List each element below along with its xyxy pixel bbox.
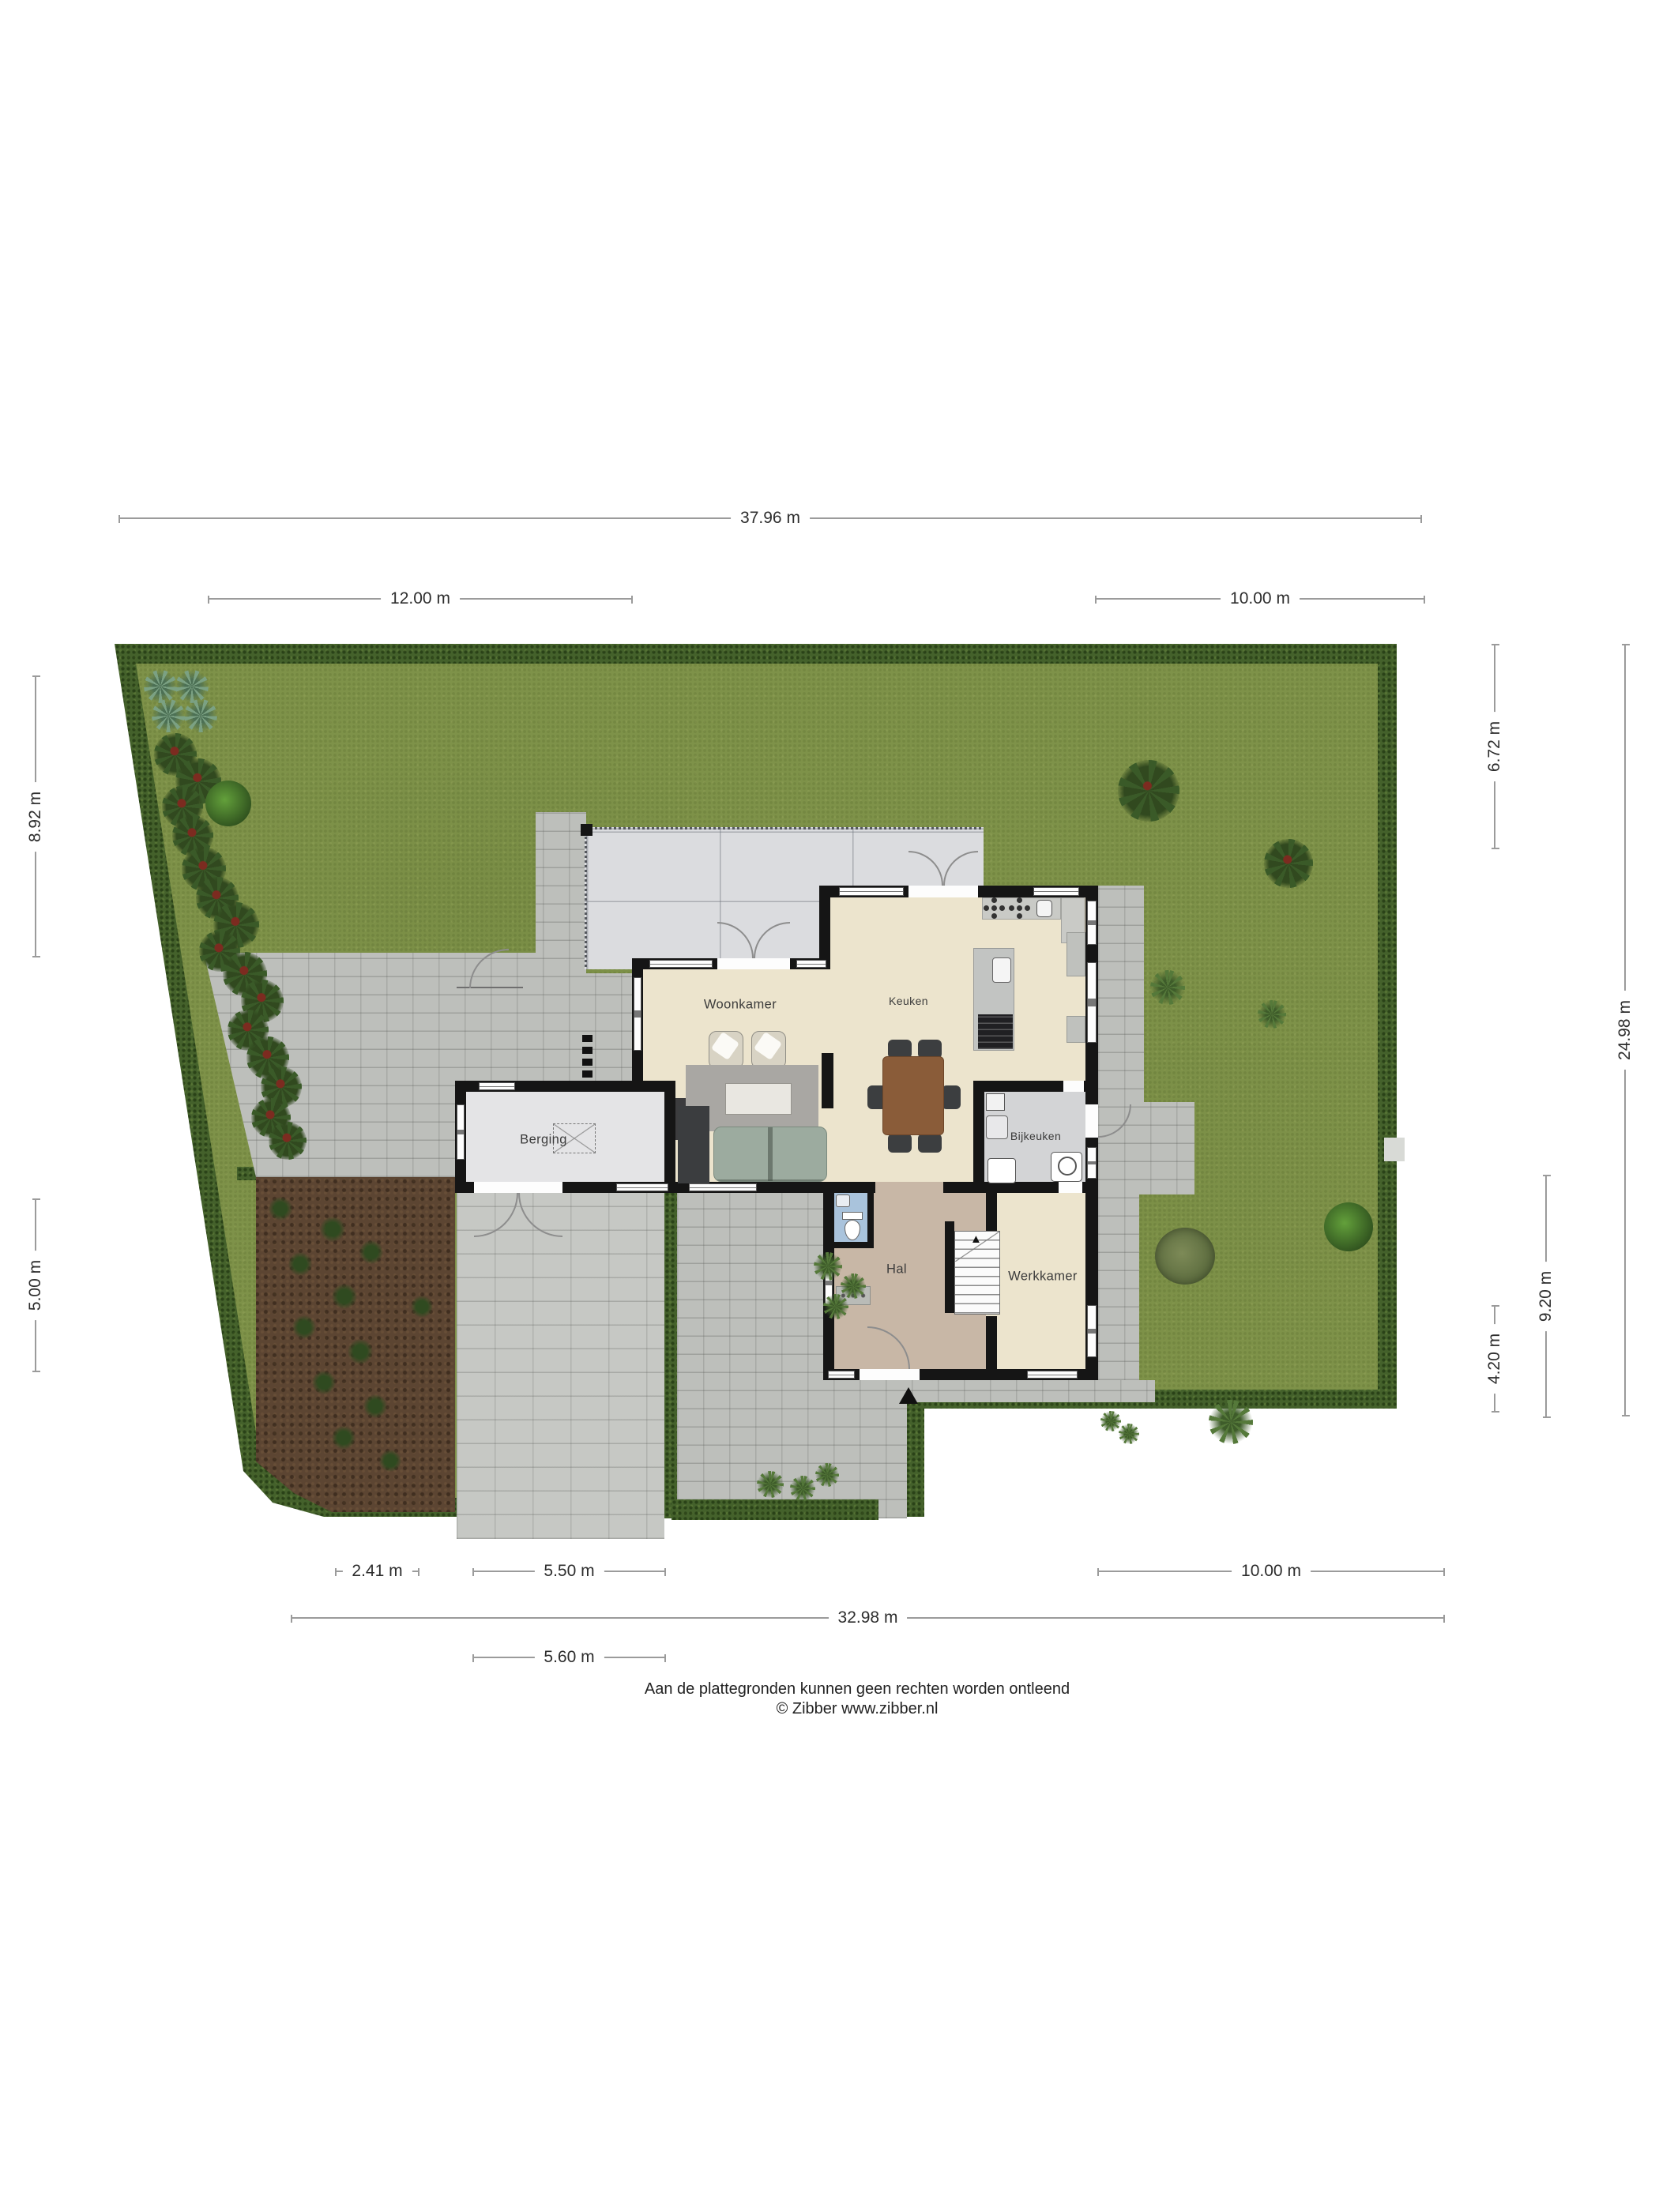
hal-passage-gap bbox=[875, 1182, 943, 1193]
kitchen-cabinet bbox=[1066, 1016, 1085, 1043]
dimension-label: 32.98 m bbox=[829, 1608, 908, 1627]
entrance-door-gap bbox=[860, 1369, 920, 1380]
dimension-bottom-drive: 5.60 m bbox=[472, 1657, 666, 1658]
window-hal-south bbox=[828, 1371, 855, 1379]
soil-plant-icon bbox=[269, 1197, 292, 1221]
tv-cabinet bbox=[678, 1106, 709, 1183]
dimension-top-left: 12.00 m bbox=[208, 598, 633, 600]
toilet-sink bbox=[836, 1194, 850, 1207]
dining-chair bbox=[888, 1134, 912, 1153]
grass-tuft-icon bbox=[1258, 1000, 1286, 1029]
dimension-label: 6.72 m bbox=[1485, 712, 1504, 781]
dimension-label: 24.98 m bbox=[1616, 991, 1635, 1070]
bush-icon bbox=[1324, 1202, 1373, 1251]
hedge-divider-vertical bbox=[664, 1175, 677, 1518]
dimension-right-inner-upper: 6.72 m bbox=[1494, 644, 1495, 849]
dimension-bottom-right: 10.00 m bbox=[1097, 1571, 1445, 1572]
grass-tuft-icon bbox=[1150, 970, 1185, 1005]
coffee-table bbox=[725, 1083, 792, 1115]
stairs-arrow-icon: ▲ bbox=[970, 1232, 982, 1246]
window-kitchen-east-1 bbox=[1087, 901, 1097, 945]
dimension-label: 10.00 m bbox=[1221, 589, 1300, 608]
gas-hob-icon bbox=[1017, 905, 1022, 911]
wall-berging-east bbox=[664, 1081, 675, 1193]
entrance-arrow-icon bbox=[899, 1387, 918, 1404]
soil-plant-icon bbox=[379, 1450, 401, 1472]
soil-plant-icon bbox=[348, 1339, 373, 1364]
dimension-label: 10.00 m bbox=[1232, 1562, 1311, 1581]
bush-icon bbox=[1155, 1228, 1215, 1285]
island-cooktop bbox=[978, 1014, 1013, 1049]
soil-plant-icon bbox=[292, 1315, 316, 1339]
wall-toilet-east bbox=[867, 1189, 874, 1248]
bijkeuken-north-door-gap bbox=[1063, 1081, 1084, 1092]
dimension-label: 12.00 m bbox=[381, 589, 460, 608]
dimension-right-inner-bottom: 4.20 m bbox=[1494, 1305, 1495, 1413]
dimension-label: 4.20 m bbox=[1485, 1324, 1504, 1394]
bijkeuken-south-door-gap bbox=[1059, 1182, 1082, 1193]
grass-tuft-icon bbox=[814, 1252, 842, 1281]
terrace-louver-marks bbox=[582, 1035, 592, 1081]
dimension-left-lower: 5.00 m bbox=[35, 1198, 36, 1372]
room-label-woonkamer: Woonkamer bbox=[704, 998, 777, 1013]
window-bijkeuken-east bbox=[1087, 1147, 1097, 1179]
tv-partition bbox=[822, 1053, 833, 1108]
terrace-post bbox=[581, 824, 592, 836]
bush-icon bbox=[205, 781, 251, 826]
utility-sink bbox=[987, 1158, 1016, 1183]
dimension-label: 5.50 m bbox=[534, 1562, 604, 1581]
tree-icon bbox=[1118, 760, 1179, 822]
window-berging-north bbox=[479, 1082, 515, 1090]
utility-box bbox=[986, 1115, 1008, 1139]
dimension-bottom-mid: 5.50 m bbox=[472, 1571, 666, 1572]
tree-icon bbox=[1264, 839, 1313, 888]
soil-plant-icon bbox=[332, 1426, 355, 1450]
tree-icon bbox=[269, 1122, 307, 1160]
footer-disclaimer: Aan de plattegronden kunnen geen rechten… bbox=[645, 1680, 1070, 1698]
grass-tuft-icon bbox=[841, 1273, 866, 1299]
window-werkkamer-east bbox=[1087, 1305, 1097, 1357]
window-living-west bbox=[634, 977, 641, 1051]
wc-tank bbox=[842, 1212, 863, 1220]
dimension-label: 5.00 m bbox=[26, 1251, 45, 1320]
grass-tuft-icon bbox=[757, 1471, 784, 1498]
bijkeuken-east-door bbox=[1085, 1104, 1098, 1138]
palm-icon bbox=[152, 699, 185, 732]
soil-plant-icon bbox=[320, 1217, 345, 1242]
window-living-north-1 bbox=[649, 960, 713, 968]
soil-plant-icon bbox=[411, 1296, 433, 1318]
palm-icon bbox=[175, 670, 209, 703]
wall-stairs-partition bbox=[945, 1221, 954, 1313]
dimension-top-total: 37.96 m bbox=[118, 517, 1422, 519]
sofa bbox=[713, 1127, 827, 1182]
soil-plant-icon bbox=[359, 1240, 383, 1264]
window-berging-west bbox=[457, 1104, 465, 1160]
hedge-gate-gap bbox=[1384, 1138, 1405, 1161]
footer-credit: © Zibber www.zibber.nl bbox=[777, 1700, 939, 1718]
window-kitchen-north-2 bbox=[1033, 887, 1079, 896]
window-living-south bbox=[689, 1183, 757, 1191]
floorplan-page: { "rooms": { "woonkamer": "Woonkamer", "… bbox=[0, 0, 1659, 2212]
dimension-label: 8.92 m bbox=[26, 781, 45, 851]
window-werkkamer-south bbox=[1027, 1371, 1078, 1379]
room-label-hal: Hal bbox=[886, 1262, 907, 1277]
gas-hob-icon bbox=[991, 905, 997, 911]
grass-tuft-icon bbox=[790, 1476, 815, 1501]
window-berging-south bbox=[616, 1183, 668, 1191]
grass-tuft-icon bbox=[823, 1294, 848, 1319]
utility-box bbox=[986, 1093, 1005, 1111]
wall-kitchen-west bbox=[819, 886, 830, 969]
grass-tuft-icon bbox=[1119, 1424, 1139, 1444]
dimension-right-outer: 24.98 m bbox=[1624, 644, 1626, 1416]
window-kitchen-east-2 bbox=[1087, 962, 1097, 1043]
soil-plant-icon bbox=[288, 1252, 312, 1276]
appliance-icon bbox=[1036, 900, 1052, 917]
paving-driveway bbox=[457, 1193, 664, 1539]
window-living-north-2 bbox=[796, 960, 826, 968]
dimension-label: 37.96 m bbox=[731, 509, 810, 528]
window-kitchen-north-1 bbox=[839, 887, 904, 896]
hedge-strip-front bbox=[671, 1499, 878, 1520]
dining-chair bbox=[918, 1134, 942, 1153]
palm-icon bbox=[184, 699, 217, 732]
room-label-keuken: Keuken bbox=[889, 995, 928, 1007]
dimension-bottom-left: 2.41 m bbox=[335, 1571, 419, 1572]
berging-garage-doors bbox=[474, 1182, 562, 1193]
soil-plant-icon bbox=[332, 1284, 357, 1309]
kitchen-tall-cabinet bbox=[1066, 932, 1085, 976]
washing-machine-drum bbox=[1058, 1157, 1077, 1176]
room-label-berging: Berging bbox=[520, 1133, 567, 1148]
room-label-bijkeuken: Bijkeuken bbox=[1010, 1130, 1061, 1142]
palm-icon bbox=[1209, 1400, 1253, 1444]
island-sink bbox=[992, 957, 1011, 983]
grass-tuft-icon bbox=[815, 1463, 839, 1487]
dining-table bbox=[882, 1056, 944, 1135]
dimension-left-upper: 8.92 m bbox=[35, 675, 36, 957]
dimension-right-inner-lower: 9.20 m bbox=[1545, 1175, 1547, 1418]
soil-plant-icon bbox=[363, 1394, 387, 1418]
palm-icon bbox=[144, 670, 177, 703]
dimension-label: 5.60 m bbox=[534, 1648, 604, 1667]
dimension-bottom-total: 32.98 m bbox=[291, 1617, 1445, 1619]
kitchen-garden-doors bbox=[908, 886, 978, 897]
dimension-label: 9.20 m bbox=[1537, 1262, 1556, 1331]
dimension-label: 2.41 m bbox=[342, 1562, 412, 1581]
soil-plant-icon bbox=[312, 1371, 336, 1394]
room-label-werkkamer: Werkkamer bbox=[1008, 1270, 1078, 1285]
wall-toilet-south bbox=[829, 1242, 874, 1248]
living-terrace-doors bbox=[717, 958, 790, 969]
wall-bijkeuken-west bbox=[973, 1081, 984, 1193]
dining-chair bbox=[942, 1085, 961, 1109]
grass-tuft-icon bbox=[1100, 1411, 1121, 1431]
dimension-top-right: 10.00 m bbox=[1095, 598, 1425, 600]
